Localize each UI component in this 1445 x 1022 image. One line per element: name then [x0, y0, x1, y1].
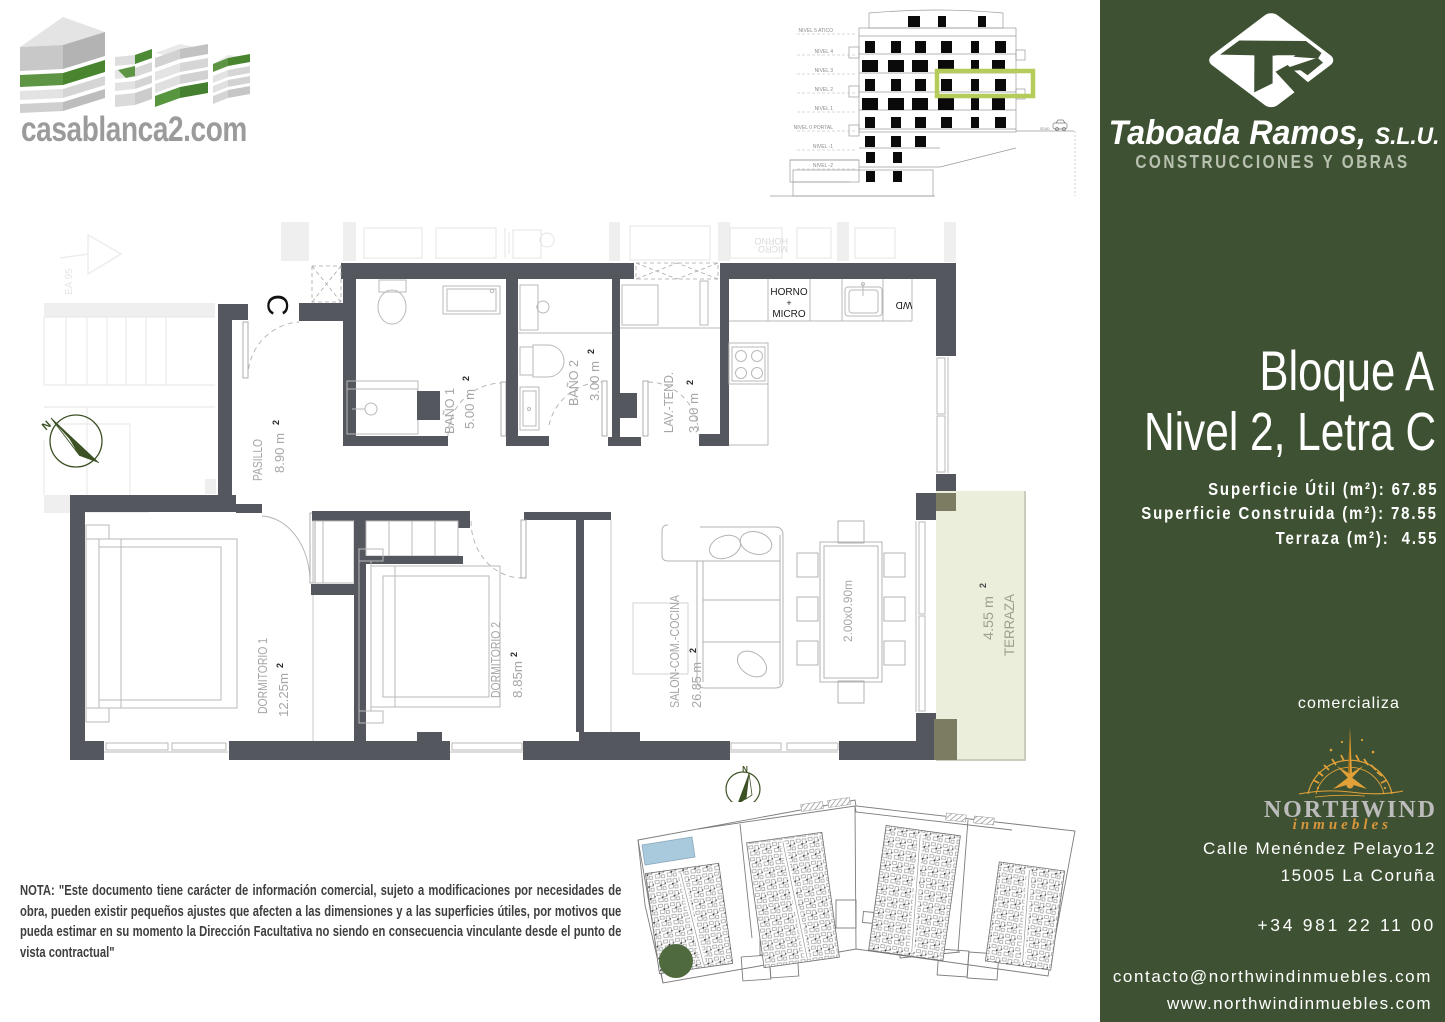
svg-text:NIVEL 5 ATICO: NIVEL 5 ATICO [799, 28, 834, 34]
svg-text:NIVEL -2: NIVEL -2 [813, 163, 833, 169]
svg-text:DORMITORIO 2: DORMITORIO 2 [489, 622, 503, 698]
svg-text:DORMITORIO 1: DORMITORIO 1 [256, 638, 270, 714]
svg-text:+: + [786, 298, 791, 308]
svg-text:NIVEL 4: NIVEL 4 [815, 49, 834, 55]
svg-text:BAÑO 2: BAÑO 2 [567, 360, 581, 406]
svg-text:NIVEL 1: NIVEL 1 [815, 106, 834, 112]
svg-text:LAV.-TEND.: LAV.-TEND. [662, 372, 676, 433]
svg-text:C: C [261, 294, 294, 316]
svg-text:2: 2 [509, 652, 519, 657]
svg-text:2: 2 [461, 376, 471, 381]
svg-text:3.00 m: 3.00 m [588, 361, 602, 401]
svg-text:3.00 m: 3.00 m [687, 393, 701, 433]
svg-text:8.90 m: 8.90 m [273, 433, 287, 473]
svg-text:MICRO: MICRO [758, 244, 788, 254]
svg-text:NIVEL 2: NIVEL 2 [815, 87, 834, 93]
svg-text:HORNO: HORNO [770, 287, 807, 298]
svg-text:5.00 m: 5.00 m [463, 389, 477, 429]
svg-text:TERRAZA: TERRAZA [1002, 594, 1017, 656]
svg-text:4.55 m: 4.55 m [981, 596, 996, 640]
svg-text:2: 2 [586, 349, 596, 354]
svg-text:N: N [742, 765, 748, 774]
svg-text:WD: WD [896, 299, 913, 310]
svg-text:EA 95: EA 95 [64, 268, 75, 295]
svg-text:2: 2 [271, 420, 281, 425]
svg-text:2: 2 [978, 583, 988, 588]
svg-text:SALON-COM.-COCINA: SALON-COM.-COCINA [668, 594, 682, 708]
svg-text:NIVEL -1: NIVEL -1 [813, 144, 833, 150]
svg-text:MICRO: MICRO [772, 309, 806, 320]
svg-text:2.00x0.90m: 2.00x0.90m [843, 580, 855, 642]
svg-text:12.25m: 12.25m [277, 673, 291, 717]
svg-text:2: 2 [688, 648, 698, 653]
svg-text:BAÑO 1: BAÑO 1 [443, 388, 457, 434]
svg-text:8.85m: 8.85m [511, 661, 525, 698]
svg-text:NIVEL 3: NIVEL 3 [815, 68, 834, 74]
svg-text:SDAD: SDAD [1040, 127, 1050, 131]
svg-text:2: 2 [275, 663, 285, 668]
svg-text:NIVEL 0 PORTAL: NIVEL 0 PORTAL [794, 125, 834, 131]
svg-text:PASILLO: PASILLO [251, 439, 265, 481]
svg-text:2: 2 [685, 380, 695, 385]
svg-text:26.85 m: 26.85 m [690, 662, 704, 708]
